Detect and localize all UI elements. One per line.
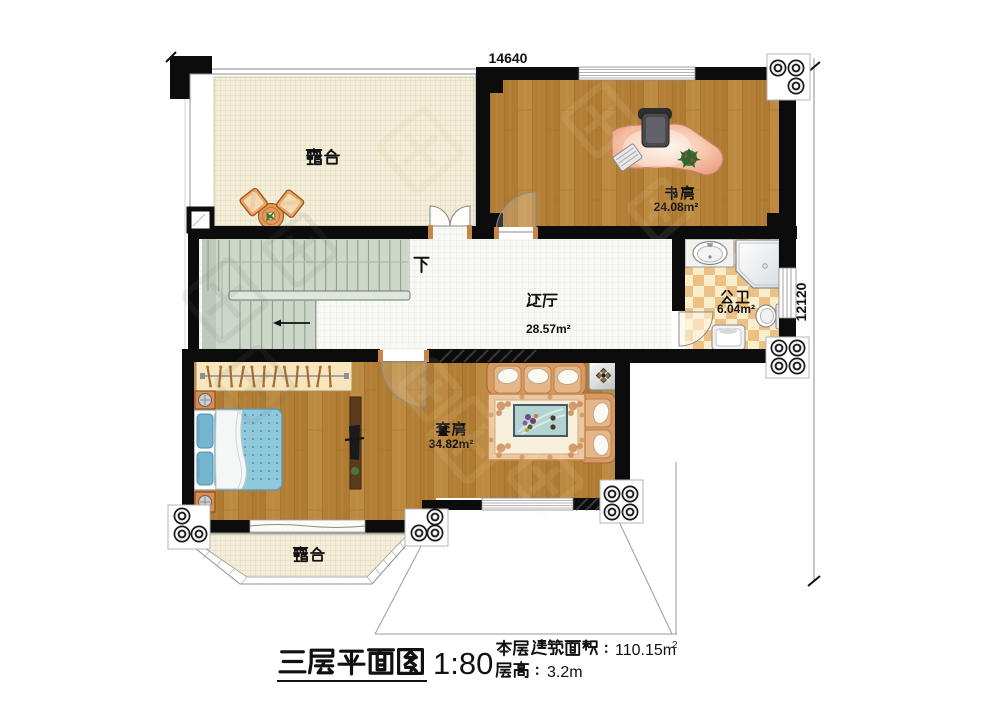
svg-text:3.2m: 3.2m xyxy=(547,664,583,681)
svg-text:28.57m²: 28.57m² xyxy=(526,322,571,336)
svg-text:6.04m²: 6.04m² xyxy=(717,302,755,316)
svg-text:2: 2 xyxy=(672,640,678,651)
svg-text:14640: 14640 xyxy=(489,50,528,66)
svg-text:110.15m: 110.15m xyxy=(615,642,676,659)
svg-text:1:80: 1:80 xyxy=(433,646,493,681)
